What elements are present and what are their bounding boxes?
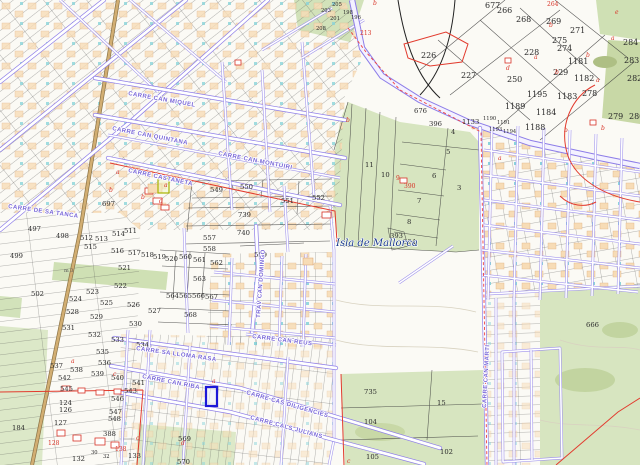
red-parcel-number: 213 <box>360 30 372 37</box>
subparcel-letter: b <box>564 127 568 134</box>
subparcel-letter: b <box>141 194 145 201</box>
parcel-number: 133 <box>128 452 141 460</box>
parcel-number: 516 <box>111 247 124 255</box>
parcel-number: 561 <box>193 256 206 264</box>
subparcel-letter: a <box>71 358 75 365</box>
parcel-number: 529 <box>90 313 103 321</box>
parcel-number: 184 <box>12 424 25 432</box>
parcel-number: 1191 <box>497 120 510 126</box>
subparcel-letter: b <box>601 125 605 132</box>
selected-parcel[interactable] <box>206 387 217 406</box>
parcel-number: 1189 <box>505 102 525 111</box>
red-parcel-number: 390 <box>404 183 416 190</box>
subparcel-letter: b <box>586 52 590 59</box>
subparcel-letter: b <box>555 69 559 76</box>
parcel-number: 511 <box>124 227 137 235</box>
parcel-number: 7 <box>417 197 421 205</box>
map-note-label: m 3 <box>64 268 74 274</box>
cadastral-map-canvas[interactable]: 4974984995025115125135145155165175185195… <box>0 0 640 465</box>
subparcel-letter: e <box>615 9 619 16</box>
parcel-number: 127 <box>54 419 67 427</box>
parcel-number: 539 <box>91 370 104 378</box>
parcel-number: 1183 <box>557 92 577 101</box>
parcel-number: 274 <box>557 44 572 53</box>
place-name: Isla de Mallorca <box>335 238 418 249</box>
parcel-number: 278 <box>582 89 597 98</box>
parcel-number: 498 <box>56 232 69 240</box>
parcel-number: 676 <box>414 107 427 115</box>
red-parcel-number: 9 <box>396 175 400 182</box>
parcel-number: 226 <box>421 51 436 60</box>
parcel-number: 271 <box>570 26 585 35</box>
parcel-number: 1182 <box>574 74 594 83</box>
parcel-number: 735 <box>364 388 377 396</box>
subparcel-letter: b <box>549 22 553 29</box>
parcel-number: 536 <box>98 359 111 367</box>
parcel-number: 1194 <box>503 129 517 135</box>
subparcel-letter: a <box>611 35 615 42</box>
parcel-number: 266 <box>497 6 512 15</box>
parcel-number: 3 <box>457 184 461 192</box>
subparcel-letter: d <box>506 65 510 72</box>
parcel-number: 552 <box>312 194 325 202</box>
parcel-number: 1188 <box>525 123 545 132</box>
parcel-number: 565 <box>179 292 192 300</box>
subparcel-letter: a <box>212 378 216 385</box>
parcel-number: 502 <box>31 290 44 298</box>
parcel-number: 562 <box>210 259 223 267</box>
parcel-number: 524 <box>69 295 82 303</box>
parcel-number: 201 <box>330 16 340 22</box>
parcel-number: 5 <box>446 148 450 156</box>
parcel-number: 15 <box>437 399 446 407</box>
parcel-number: 284 <box>623 38 638 47</box>
parcel-number: 533 <box>111 336 124 344</box>
parcel-number: 551 <box>281 197 294 205</box>
parcel-number: 530 <box>129 320 142 328</box>
parcel-number: 546 <box>111 395 124 403</box>
parcel-number: 550 <box>240 183 253 191</box>
parcel-number: 560 <box>179 253 192 261</box>
parcel-number: 563 <box>193 275 206 283</box>
subparcel-letter: b <box>109 187 113 194</box>
map-note: m 3 <box>64 268 74 274</box>
parcel-number: 525 <box>100 299 113 307</box>
parcel-number: 543 <box>124 387 137 395</box>
subparcel-letter: a <box>116 169 120 176</box>
parcel-number: 549 <box>210 186 223 194</box>
parcel-number: 564 <box>166 292 179 300</box>
parcel-number: 203 <box>321 8 331 14</box>
parcel-number: 4 <box>451 128 455 136</box>
parcel-number: 527 <box>148 307 161 315</box>
parcel-number: 227 <box>461 71 476 80</box>
subparcel-letter: d <box>159 198 163 205</box>
red-parcel-number: 138 <box>115 446 127 453</box>
parcel-number: 11 <box>365 161 374 169</box>
parcel-number: 497 <box>28 225 41 233</box>
red-parcel-number: 264 <box>547 1 559 8</box>
parcel-number: 522 <box>114 282 127 290</box>
parcel-number: 542 <box>58 374 71 382</box>
cadastral-map[interactable]: 4974984995025115125135145155165175185195… <box>0 0 640 465</box>
parcel-number: 528 <box>66 308 79 316</box>
parcel-number: 102 <box>440 448 453 456</box>
parcel-number: 104 <box>364 418 377 426</box>
parcel-number: 388 <box>103 430 116 438</box>
parcel-number: 282 <box>627 74 640 83</box>
parcel-number: 526 <box>127 301 140 309</box>
parcel-number: 535 <box>96 348 109 356</box>
parcel-number: 268 <box>516 15 531 24</box>
parcel-number: 132 <box>72 455 85 463</box>
parcel-number: 279 <box>608 112 623 121</box>
subparcel-letter: a <box>498 155 502 162</box>
parcel-number: 1190 <box>483 116 496 122</box>
parcel-number: 1184 <box>536 108 556 117</box>
parcel-number: 30 <box>91 450 98 456</box>
subparcel-letter: a <box>596 77 600 84</box>
parcel-number: 208 <box>316 26 326 32</box>
parcel-number: 517 <box>128 249 141 257</box>
parcel-number: 280 <box>629 112 640 121</box>
subparcel-letter: a <box>164 182 168 189</box>
parcel-number: 513 <box>95 235 108 243</box>
place-name-label: Isla de Mallorca <box>335 238 418 249</box>
parcel-number: 523 <box>86 288 99 296</box>
parcel-number: 196 <box>351 15 361 21</box>
parcel-number: 570 <box>177 458 190 465</box>
parcel-number: 105 <box>366 453 379 461</box>
parcel-number: 531 <box>62 324 75 332</box>
parcel-number: 6 <box>432 172 436 180</box>
red-parcel-number: 128 <box>48 440 60 447</box>
parcel-number: 499 <box>10 252 23 260</box>
parcel-number: 283 <box>624 56 639 65</box>
parcel-number: 205 <box>332 2 342 8</box>
parcel-number: 568 <box>184 311 197 319</box>
subparcel-letter: a <box>534 54 538 61</box>
subparcel-letter: d <box>181 440 185 447</box>
parcel-number: 558 <box>203 245 216 253</box>
parcel-number: 126 <box>59 406 72 414</box>
parcel-number: 396 <box>429 120 442 128</box>
parcel-number: 537 <box>50 362 63 370</box>
parcel-number: 548 <box>108 415 121 423</box>
subparcel-letter: b <box>373 0 377 7</box>
parcel-number: 740 <box>237 229 250 237</box>
subparcel-letter: b <box>346 117 350 124</box>
parcel-number: 666 <box>586 321 599 329</box>
parcel-number: 32 <box>103 454 110 460</box>
parcel-number: 557 <box>203 234 216 242</box>
parcel-number: 538 <box>70 366 83 374</box>
parcel-number: 566 <box>192 292 205 300</box>
parcel-number: 697 <box>102 200 115 208</box>
parcel-number: 739 <box>238 211 251 219</box>
parcel-number: 567 <box>205 293 218 301</box>
parcel-number: 515 <box>84 243 97 251</box>
parcel-number: 8 <box>407 218 411 226</box>
parcel-number: 512 <box>80 234 93 242</box>
parcel-number: 520 <box>165 255 178 263</box>
parcel-number: 532 <box>88 331 101 339</box>
parcel-number: 545 <box>60 385 73 393</box>
parcel-number: 1195 <box>527 90 547 99</box>
parcel-number: 1193 <box>489 127 502 133</box>
parcel-number: 250 <box>507 75 522 84</box>
parcel-number: 514 <box>112 230 125 238</box>
parcel-number: 10 <box>381 171 390 179</box>
parcel-number: 1133 <box>462 118 479 126</box>
parcel-number: 521 <box>118 264 131 272</box>
